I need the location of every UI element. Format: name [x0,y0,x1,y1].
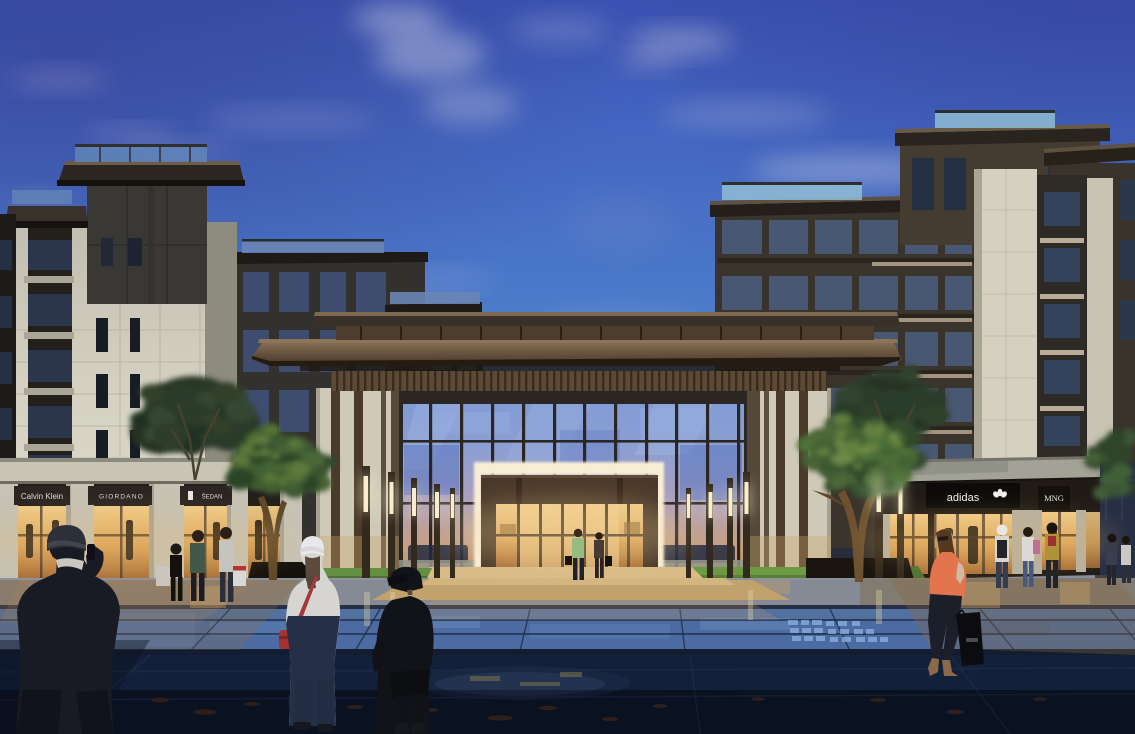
svg-text:Calvin Klein: Calvin Klein [21,492,63,501]
svg-text:adidas: adidas [947,492,980,504]
svg-text:GIORDANO: GIORDANO [99,494,144,501]
svg-text:MNG: MNG [1044,493,1064,503]
svg-text:ŠEDAN: ŠEDAN [202,494,223,501]
